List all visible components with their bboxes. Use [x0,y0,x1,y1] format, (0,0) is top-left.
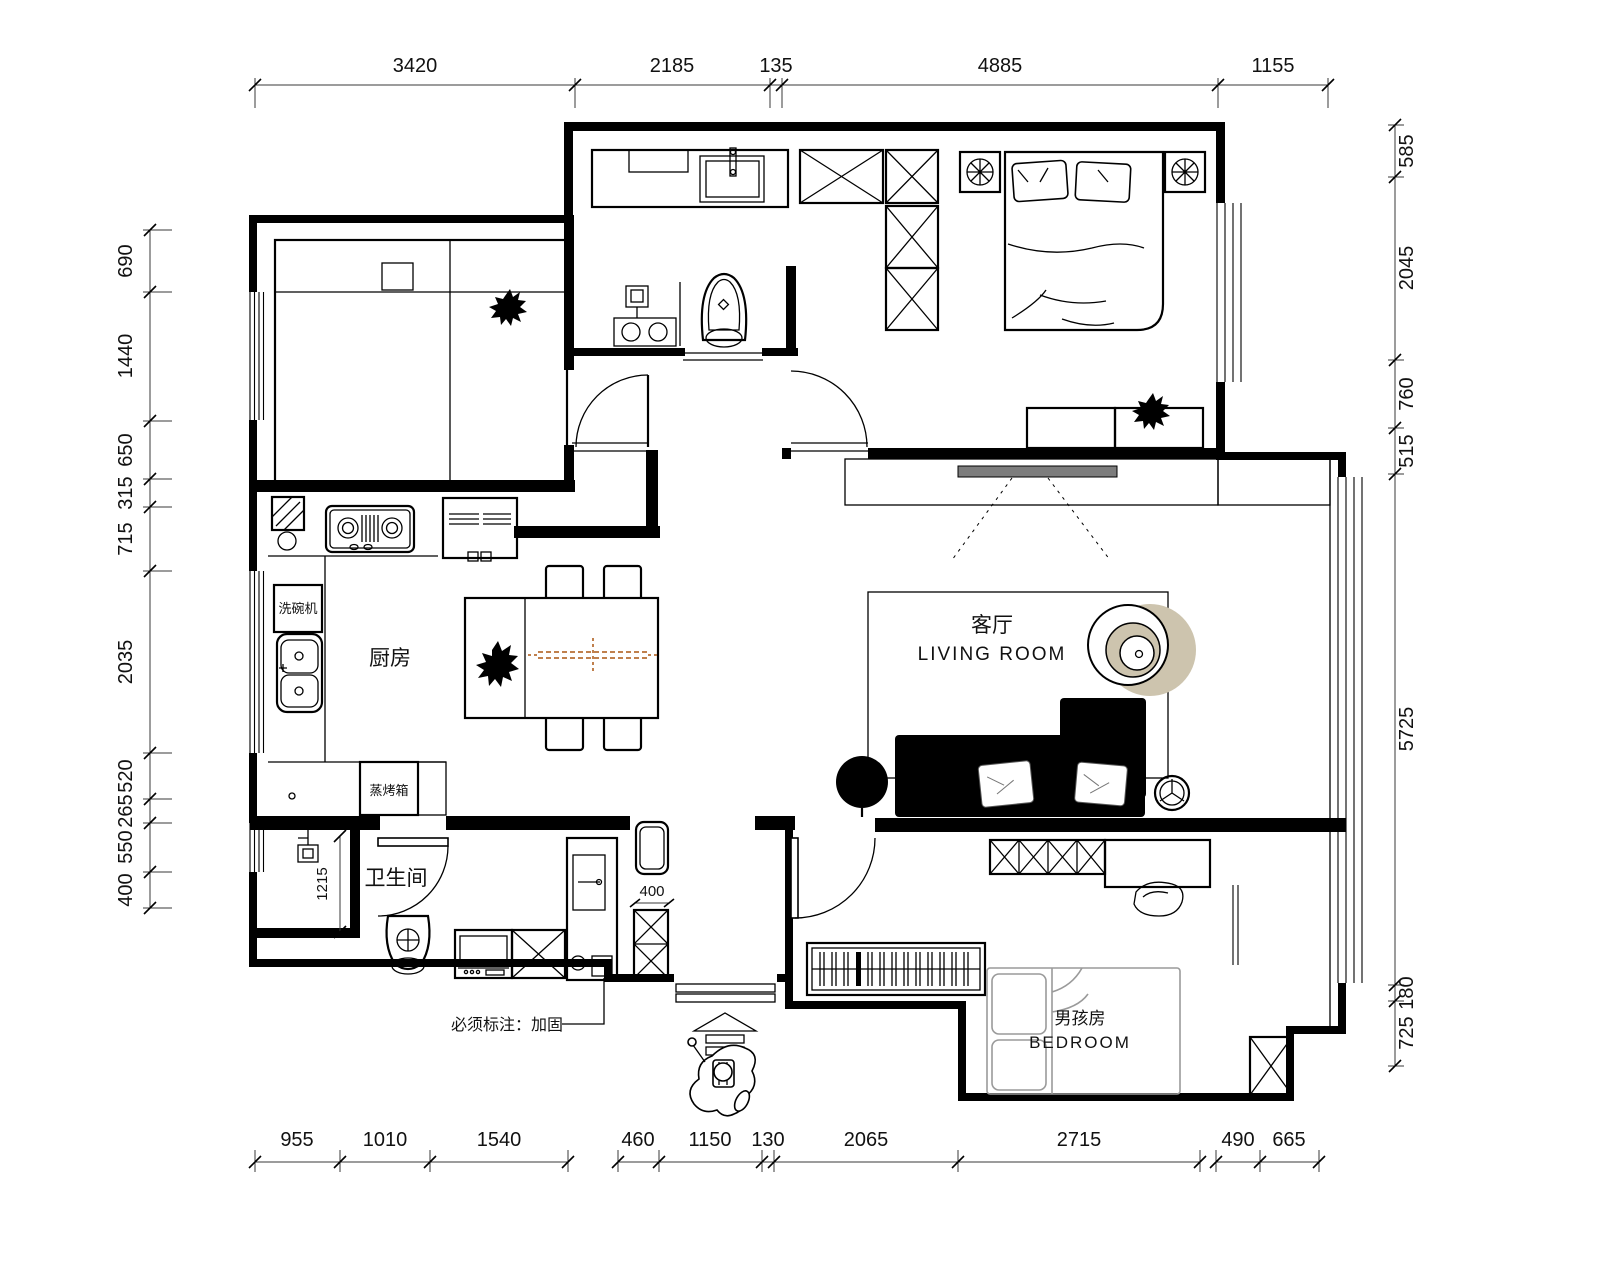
dim-right-4: 515 [1396,434,1418,467]
dim-top-4: 4885 [978,55,1023,77]
dim-right-2: 2045 [1396,246,1418,291]
sofa [895,698,1146,817]
vanity-sink-basin [706,161,759,197]
dim-left-8: 265 [115,794,137,827]
dim-right-7: 725 [1396,1016,1418,1049]
living-label-cn: 客厅 [971,614,1013,637]
dim-left-2: 1440 [115,334,137,379]
boys-door-leaf [791,838,798,918]
tv-console-ext [1218,459,1330,505]
dim-left-4: 315 [115,476,137,509]
dim-bottom-6: 130 [751,1129,784,1151]
sofa-pillow [978,760,1034,807]
dim-right-6: 180 [1396,976,1418,1009]
decor-sketch [489,289,527,326]
dishwasher-box: 洗碗机 [274,585,322,632]
master-threshold [791,443,868,451]
dim-bottom-8: 2715 [1057,1129,1102,1151]
window-boys-room [1233,885,1238,965]
person-figure [688,1038,755,1116]
dishwasher-label: 洗碗机 [278,601,317,616]
platform-bed [275,240,567,483]
room-living: 客厅 LIVING ROOM [836,592,1196,817]
tv-screen [958,466,1117,477]
vanity-faucet [730,148,736,176]
fridge-unit [443,498,517,561]
dimension-chain-top: 3420 2185 135 4885 1155 [249,55,1334,108]
sofa-pillow [1074,762,1127,806]
boys-label-en: BEDROOM [1029,1033,1131,1052]
windows [250,203,1362,1030]
chair [604,716,641,750]
desk [1105,840,1210,887]
counter-edges [268,556,446,762]
nightstand-left [960,152,1000,192]
room-master-bedroom [800,150,1205,448]
dining-set [465,566,658,750]
dim-left-1: 690 [115,244,137,277]
nightstand-right [1165,152,1205,192]
vanity-sink [700,156,764,202]
dim-bottom-2: 1010 [363,1129,408,1151]
bed-pillow [382,263,413,290]
tall-cabinet [567,838,617,980]
dim-top-2: 2185 [650,55,695,77]
room-top-left-bedroom [275,240,567,483]
dim-bottom-5: 1150 [688,1129,731,1151]
dim-top-5: 1155 [1251,55,1294,77]
hall-west-door-swing [576,375,648,447]
boys-door-swing [795,838,875,918]
entry-sink-unit: 400 [630,822,674,978]
dim-bottom-1: 955 [280,1129,313,1151]
niche: 1215 [298,826,346,938]
laundry-basins [614,282,680,346]
entry [676,984,775,1116]
dim-bottom-10: 665 [1272,1129,1305,1151]
side-table-round [836,756,888,817]
chair [546,716,583,750]
tv-wall [845,459,1330,560]
master-door-swing [791,371,867,447]
kitchen-sink [277,634,322,712]
hall-west-threshold [572,443,648,451]
window-master-bedroom [1217,203,1241,382]
plant-sketch [1132,393,1170,430]
dresser [1027,393,1203,448]
living-label-en: LIVING ROOM [918,644,1067,665]
floor-plan-drawing: 3420 2185 135 4885 1155 690 1440 650 315… [0,0,1600,1280]
boys-label-cn: 男孩房 [1055,1009,1106,1028]
bathroom-label: 卫生间 [365,867,428,890]
dim-bottom-7: 2065 [844,1129,889,1151]
dim-bottom-9: 490 [1221,1129,1254,1151]
steam-oven-label: 蒸烤箱 [369,783,408,798]
dim-left-5: 715 [115,522,137,555]
dim-bottom-4: 460 [621,1129,654,1151]
gas-stove [326,506,414,552]
dim-left-6: 2035 [115,640,137,685]
tv-projection-lines [952,478,1110,560]
slat-bench [807,943,985,995]
room-boys-bedroom: 男孩房 BEDROOM [807,840,1292,1095]
dimension-chain-bottom: 955 1010 1540 460 1150 130 2065 2715 490… [249,1129,1325,1172]
dim-bottom-3: 1540 [477,1129,522,1151]
dim-top-3: 135 [759,55,792,77]
niche-depth-dim: 1215 [314,867,331,900]
boys-wardrobe [990,840,1105,874]
window-left-bedroom [250,292,264,420]
chair [604,566,641,600]
toilet-top [702,274,746,347]
bed-divider [275,240,567,483]
floor-lamp [1155,776,1189,810]
boys-bed [987,968,1180,1094]
dim-left-10: 400 [115,873,137,906]
round-armchair [1088,604,1196,696]
bathroom-threshold [683,353,763,360]
dim-top-1: 3420 [393,55,438,77]
window-bathroom [250,823,264,872]
corner-cabinet [272,497,304,550]
chair [546,566,583,600]
kitchen-label: 厨房 [369,647,411,670]
window-bay-living [1338,477,1362,983]
dim-left-7: 520 [115,759,137,792]
dim-right-5: 5725 [1396,707,1418,752]
corner-pillar-x [1250,1037,1292,1095]
window-kitchen [250,571,264,753]
steam-oven-box: 蒸烤箱 [289,762,446,815]
reinforce-annotation: 必须标注：加固 [451,978,604,1034]
floor-plan-canvas: 3420 2185 135 4885 1155 690 1440 650 315… [0,0,1600,1280]
dimension-chain-left: 690 1440 650 315 715 2035 520 265 550 40… [115,224,172,914]
sink-width-dim: 400 [639,883,664,900]
entry-arrow [694,1013,756,1031]
dim-left-9: 550 [115,830,137,863]
dimension-chain-right: 585 2045 760 515 5725 180 725 [1388,119,1418,1072]
laundry-appliance [455,930,512,978]
dim-right-3: 760 [1396,377,1418,410]
wardrobe-master [800,150,938,330]
dim-right-1: 585 [1396,134,1418,167]
interior-walls [249,215,1346,938]
dim-left-3: 650 [115,433,137,466]
room-top-bathroom [592,148,788,347]
lower-bath-door-leaf [378,838,448,846]
vanity-shelf [629,150,688,172]
master-bed [1005,152,1163,330]
reinforce-note: 必须标注：加固 [451,1016,563,1034]
